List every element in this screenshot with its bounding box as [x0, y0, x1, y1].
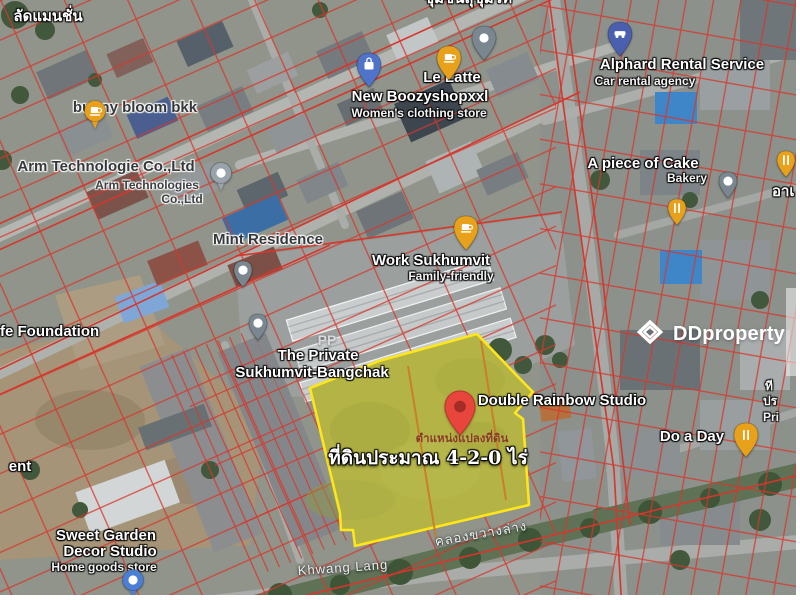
- watermark-strip: [786, 288, 796, 376]
- pin-do-a-day-restaurant[interactable]: [733, 422, 759, 463]
- label-arm-line3[interactable]: Co.,Ltd: [161, 193, 202, 206]
- pin-cake-place[interactable]: [718, 171, 738, 204]
- pin-arm-tech[interactable]: [208, 161, 234, 198]
- pin-land-marker[interactable]: [443, 390, 477, 441]
- label-work-sub[interactable]: Family-friendly: [408, 270, 493, 283]
- label-mansion[interactable]: ลัดแมนชั่น: [13, 9, 82, 25]
- label-private-line1[interactable]: The Private: [278, 348, 359, 364]
- label-sweet-line2[interactable]: Decor Studio: [63, 544, 156, 560]
- pin-right-edge-restaurant[interactable]: [776, 150, 796, 183]
- pin-boozyshop-shopping[interactable]: [356, 52, 382, 93]
- label-ent-partial[interactable]: ent: [9, 459, 32, 475]
- label-right-partial-2[interactable]: ปร: [763, 395, 777, 408]
- label-right-partial-1[interactable]: ที: [765, 380, 773, 393]
- label-pp: PP: [318, 333, 337, 348]
- label-alphard-sub[interactable]: Car rental agency: [595, 75, 696, 88]
- label-right-partial-3[interactable]: Pri: [763, 411, 779, 424]
- label-boozyshop-sub[interactable]: Women's clothing store: [351, 107, 486, 120]
- label-private-line2[interactable]: Sukhumvit-Bangchak: [235, 365, 388, 381]
- label-arm-line1[interactable]: Arm Technologie Co.,Ltd: [17, 159, 194, 175]
- label-community-top[interactable]: ชุมชนสุขุมวิท: [424, 0, 512, 7]
- pin-place-top[interactable]: [471, 25, 497, 66]
- satellite-map: ลัดแมนชั่นชุมชนสุขุมวิทbunny bloom bkkAr…: [0, 0, 800, 600]
- label-do-a-day[interactable]: Do a Day: [660, 429, 724, 445]
- label-foundation[interactable]: fe Foundation: [0, 324, 99, 340]
- dd-chevron-logo-icon: [634, 316, 666, 353]
- ddproperty-watermark: DDproperty: [634, 316, 785, 353]
- label-parcel-area: ที่ดินประมาณ 4-2-0 ไร่: [328, 449, 528, 469]
- image-margin-right: [796, 0, 800, 600]
- image-margin-bottom: [0, 595, 800, 600]
- watermark-brand: DDproperty: [673, 323, 785, 346]
- pin-work-sukhumvit-cafe[interactable]: [453, 215, 479, 256]
- label-double-rainbow[interactable]: Double Rainbow Studio: [478, 393, 646, 409]
- label-bakery-sub[interactable]: Bakery: [667, 172, 707, 185]
- pin-the-private[interactable]: [248, 313, 268, 346]
- label-right-thai[interactable]: อาเ: [772, 184, 795, 200]
- label-mint-residence[interactable]: Mint Residence: [213, 232, 323, 248]
- pin-alphard-car[interactable]: [607, 21, 633, 62]
- label-arm-line2[interactable]: Arm Technologies: [95, 179, 199, 192]
- pin-mint-residence[interactable]: [233, 260, 253, 293]
- pin-le-latte-cafe[interactable]: [436, 45, 462, 86]
- pin-bunny-bloom-cafe[interactable]: [82, 99, 108, 136]
- label-sweet-line1[interactable]: Sweet Garden: [56, 528, 156, 544]
- pin-cake-restaurant[interactable]: [667, 198, 687, 231]
- label-piece-of-cake[interactable]: A piece of Cake: [587, 156, 698, 172]
